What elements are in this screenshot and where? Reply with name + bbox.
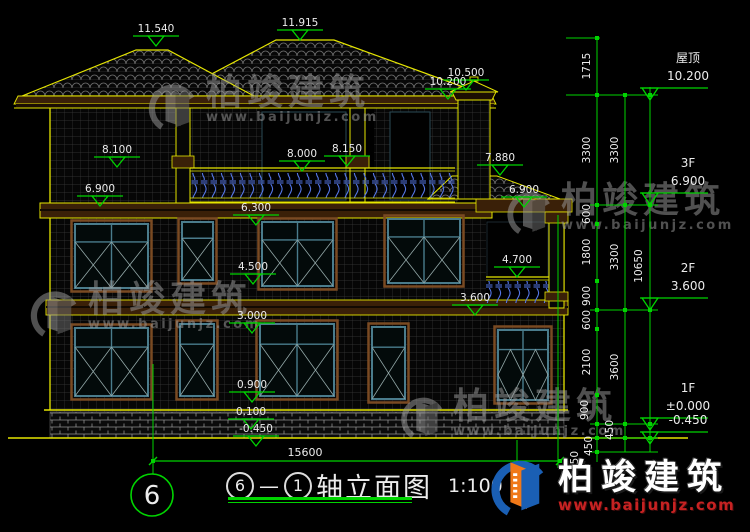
storey-name: 2F	[681, 261, 696, 275]
elevation-marker: 4.500	[230, 261, 276, 284]
title-underline-thick	[228, 497, 412, 500]
dimension-value: 3300	[609, 244, 621, 271]
marker-label: 6.900	[509, 184, 539, 196]
marker-label: 0.900	[237, 379, 267, 391]
marker-triangle-icon	[92, 196, 108, 206]
marker-label: 6.900	[85, 183, 115, 195]
marker-triangle-icon	[294, 161, 310, 171]
dimension-value: 900	[581, 286, 593, 306]
dimension-value: 900	[579, 400, 591, 420]
marker-triangle-icon	[339, 156, 355, 166]
storey-elevation: 10.200	[667, 69, 709, 83]
marker-label: 10.200	[430, 76, 467, 88]
elevation-marker: 10.200	[425, 76, 471, 99]
storey-elevation: ±0.000	[666, 399, 710, 413]
dimension-value: 3600	[609, 354, 621, 381]
marker-label: -0.450	[239, 423, 273, 435]
marker-triangle-icon	[492, 165, 508, 175]
elevation-marker: 6.900	[77, 183, 123, 206]
elevation-marker: 6.900	[501, 184, 547, 207]
dimension-value: 1715	[581, 53, 593, 80]
elevation-marker: 3.600	[452, 292, 498, 315]
elevation-marker: 0.900	[229, 379, 275, 402]
marker-triangle-icon	[109, 157, 125, 167]
title-underline-thin	[228, 502, 412, 503]
title-axis-dash: —	[259, 474, 279, 498]
marker-triangle-icon	[245, 274, 261, 284]
elevation-marker: -0.450	[233, 423, 279, 446]
elevation-marker: 11.915	[277, 17, 323, 40]
storey-elevation: -0.450	[669, 413, 708, 427]
dimension-value: 450	[604, 420, 616, 440]
marker-label: 0.100	[236, 406, 266, 418]
dimension-value: 600	[581, 310, 593, 330]
dimension-tick	[595, 222, 599, 226]
marker-triangle-icon	[248, 215, 264, 225]
elevation-marker: 6.300	[233, 202, 279, 225]
storey-name: 屋顶	[676, 51, 700, 65]
elevation-marker: 4.700	[494, 254, 540, 277]
marker-label: 8.100	[102, 144, 132, 156]
marker-triangle-icon	[467, 305, 483, 315]
dimension-tick	[595, 327, 599, 331]
brand-logo-icon	[487, 451, 553, 523]
marker-triangle-icon	[516, 197, 532, 207]
marker-label: 11.540	[138, 23, 175, 35]
marker-label: 3.000	[237, 310, 267, 322]
storey-name: 3F	[681, 156, 696, 170]
storey-name: 1F	[681, 381, 696, 395]
brand-name: 柏竣建筑	[558, 460, 735, 497]
elevation-marker: 8.100	[94, 144, 140, 167]
brand-url: www.baijunjz.com	[558, 496, 735, 514]
elevation-marker: 8.000	[279, 148, 325, 171]
dimension-value: 600	[581, 204, 593, 224]
brand-logo: 柏竣建筑 www.baijunjz.com	[487, 451, 735, 523]
dimension-value: 15600	[288, 446, 323, 459]
title-axis-start-bubble: 6	[226, 472, 254, 500]
marker-label: 8.150	[332, 143, 362, 155]
marker-triangle-icon	[244, 323, 260, 333]
marker-triangle-icon	[148, 36, 164, 46]
marker-triangle-icon	[292, 30, 308, 40]
storey-elevation: 6.900	[671, 174, 705, 188]
dimension-tick	[151, 459, 155, 463]
dimension-value: 2100	[581, 349, 593, 376]
marker-label: 8.000	[287, 148, 317, 160]
marker-label: 4.500	[238, 261, 268, 273]
dimension-tick	[595, 279, 599, 283]
elevation-marker: 11.540	[133, 23, 179, 46]
marker-triangle-icon	[509, 267, 525, 277]
marker-label: 3.600	[460, 292, 490, 304]
title-axis-end-bubble: 1	[284, 472, 312, 500]
dimension-tick	[595, 393, 599, 397]
elevation-marker: 3.000	[229, 310, 275, 333]
elevation-marker: 8.150	[324, 143, 370, 166]
marker-triangle-icon	[440, 89, 456, 99]
marker-label: 4.700	[502, 254, 532, 266]
marker-label: 7.880	[485, 152, 515, 164]
storey-elevation: 3.600	[671, 279, 705, 293]
marker-triangle-icon	[248, 436, 264, 446]
axis-bubble: 6	[131, 474, 173, 516]
dimension-value: 1800	[581, 239, 593, 266]
marker-label: 11.915	[282, 17, 319, 29]
dimension-value: 3300	[609, 137, 621, 164]
axis-bubble-label: 6	[144, 481, 161, 511]
cad-elevation-drawing: 柏竣建筑 www.baijunjz.com 柏竣建筑 www.baijunjz.…	[0, 0, 750, 532]
marker-label: 6.300	[241, 202, 271, 214]
dimension-value: 10650	[633, 249, 645, 282]
dimension-value: 3300	[581, 137, 593, 164]
elevation-marker: 7.880	[477, 152, 523, 175]
marker-triangle-icon	[244, 392, 260, 402]
